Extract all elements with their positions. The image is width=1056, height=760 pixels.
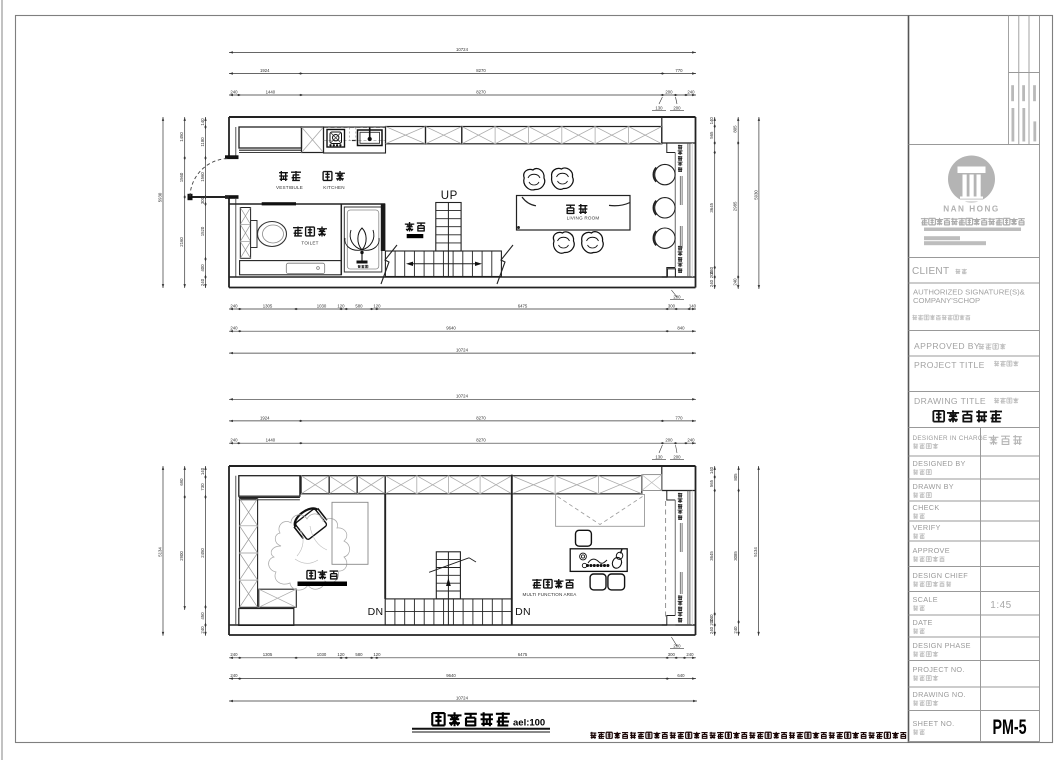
svg-text:APPROVE: APPROVE — [913, 546, 950, 555]
svg-text:770: 770 — [675, 68, 683, 73]
svg-text:1560: 1560 — [200, 172, 205, 182]
svg-text:3645: 3645 — [709, 202, 714, 212]
svg-text:10724: 10724 — [456, 695, 469, 700]
svg-text:240: 240 — [200, 278, 205, 286]
svg-text:VERIFY: VERIFY — [913, 523, 941, 532]
svg-text:2160: 2160 — [179, 237, 184, 247]
svg-text:LIVING ROOM: LIVING ROOM — [567, 216, 600, 221]
svg-text:DRAWING NO.: DRAWING NO. — [913, 690, 966, 699]
svg-text:140: 140 — [200, 467, 205, 475]
svg-text:200: 200 — [673, 455, 681, 460]
svg-text:2900: 2900 — [179, 551, 184, 561]
svg-text:8270: 8270 — [476, 89, 486, 94]
svg-text:NAN HONG: NAN HONG — [943, 205, 1000, 214]
svg-text:240: 240 — [200, 626, 205, 634]
svg-text:1180: 1180 — [200, 137, 205, 147]
svg-text:1450: 1450 — [179, 132, 184, 142]
svg-text:565: 565 — [709, 479, 714, 487]
svg-text:9640: 9640 — [446, 673, 456, 678]
svg-text:240: 240 — [230, 673, 238, 678]
svg-text:805: 805 — [733, 125, 738, 133]
svg-text:APPROVED BY: APPROVED BY — [914, 341, 980, 351]
svg-text:CLIENT: CLIENT — [912, 266, 949, 277]
svg-text:140: 140 — [709, 466, 714, 474]
svg-text:130: 130 — [655, 106, 663, 111]
svg-text:730: 730 — [200, 483, 205, 491]
svg-text:200: 200 — [673, 644, 681, 649]
svg-text:240: 240 — [686, 652, 694, 657]
svg-text:1520: 1520 — [200, 226, 205, 236]
svg-text:ael:100: ael:100 — [513, 718, 545, 729]
svg-text:770: 770 — [675, 415, 683, 420]
svg-text:MULTI FUNCTION AREA: MULTI FUNCTION AREA — [523, 592, 578, 597]
svg-text:200: 200 — [673, 295, 681, 300]
svg-text:240: 240 — [230, 89, 238, 94]
svg-text:140: 140 — [689, 303, 697, 308]
svg-text:200: 200 — [709, 270, 714, 278]
svg-text:300: 300 — [200, 196, 205, 204]
svg-text:CHECK: CHECK — [913, 503, 940, 512]
svg-text:COMPANY'SCHOP: COMPANY'SCHOP — [913, 296, 980, 305]
svg-text:120: 120 — [373, 303, 381, 308]
svg-text:1030: 1030 — [317, 652, 327, 657]
svg-text:130: 130 — [655, 455, 663, 460]
svg-text:400: 400 — [200, 264, 205, 272]
svg-text:8270: 8270 — [476, 68, 486, 73]
svg-text:PROJECT TITLE: PROJECT TITLE — [914, 360, 985, 370]
svg-text:805: 805 — [733, 473, 738, 481]
svg-text:DESIGN CHIEF: DESIGN CHIEF — [913, 571, 969, 580]
svg-text:10724: 10724 — [456, 394, 469, 399]
svg-text:200: 200 — [665, 438, 673, 443]
svg-text:200: 200 — [673, 106, 681, 111]
svg-text:1924: 1924 — [260, 68, 270, 73]
svg-text:8270: 8270 — [476, 438, 486, 443]
svg-text:240: 240 — [709, 626, 714, 634]
svg-text:UP: UP — [441, 190, 458, 202]
svg-text:640: 640 — [677, 673, 685, 678]
svg-text:9640: 9640 — [446, 326, 456, 331]
svg-text:1030: 1030 — [317, 303, 327, 308]
svg-text:450: 450 — [200, 612, 205, 620]
svg-text:200: 200 — [665, 89, 673, 94]
svg-text:580: 580 — [355, 303, 363, 308]
svg-text:DESIGN PHASE: DESIGN PHASE — [913, 641, 971, 650]
svg-text:3085: 3085 — [733, 551, 738, 561]
svg-text:200: 200 — [709, 618, 714, 626]
svg-text:DATE: DATE — [913, 618, 933, 627]
svg-text:VESTIBULE: VESTIBULE — [276, 185, 303, 190]
svg-text:1924: 1924 — [260, 415, 270, 420]
svg-text:240: 240 — [230, 438, 238, 443]
svg-text:120: 120 — [373, 652, 381, 657]
svg-text:240: 240 — [230, 652, 238, 657]
svg-text:240: 240 — [230, 326, 238, 331]
svg-text:140: 140 — [709, 117, 714, 125]
svg-text:120: 120 — [337, 652, 345, 657]
svg-text:DESIGNED BY: DESIGNED BY — [913, 459, 966, 468]
svg-text:565: 565 — [709, 131, 714, 139]
svg-text:2985: 2985 — [733, 201, 738, 211]
svg-text:1440: 1440 — [266, 438, 276, 443]
svg-text:5134: 5134 — [157, 547, 162, 557]
svg-text:120: 120 — [337, 303, 345, 308]
svg-text:10724: 10724 — [456, 348, 469, 353]
svg-text:240: 240 — [687, 438, 695, 443]
svg-text:300: 300 — [668, 652, 676, 657]
svg-text:DN: DN — [368, 606, 384, 618]
svg-text:1305: 1305 — [263, 303, 273, 308]
svg-text:140: 140 — [200, 118, 205, 126]
svg-text:240: 240 — [230, 303, 238, 308]
svg-text:690: 690 — [179, 478, 184, 486]
svg-text:240: 240 — [709, 279, 714, 287]
svg-text:DESIGNER IN CHARGE: DESIGNER IN CHARGE — [913, 435, 988, 442]
svg-text:6475: 6475 — [518, 652, 528, 657]
svg-text:5930: 5930 — [157, 192, 162, 202]
svg-text:DN: DN — [515, 606, 531, 618]
svg-text:5134: 5134 — [753, 547, 758, 557]
svg-text:DRAWN BY: DRAWN BY — [913, 482, 954, 491]
svg-text:5930: 5930 — [753, 190, 758, 200]
svg-text:SCALE: SCALE — [913, 595, 938, 604]
svg-text:2450: 2450 — [200, 548, 205, 558]
svg-text:3645: 3645 — [709, 551, 714, 561]
svg-text:PROJECT NO.: PROJECT NO. — [913, 665, 965, 674]
svg-text:1560: 1560 — [179, 172, 184, 182]
svg-text:6475: 6475 — [518, 303, 528, 308]
svg-text:10724: 10724 — [456, 47, 469, 52]
svg-text:1:45: 1:45 — [990, 600, 1011, 611]
svg-text:580: 580 — [355, 652, 363, 657]
svg-text:300: 300 — [668, 303, 676, 308]
svg-text:DRAWING TITLE: DRAWING TITLE — [914, 396, 986, 406]
svg-text:SHEET NO.: SHEET NO. — [913, 719, 955, 728]
svg-text:240: 240 — [687, 89, 695, 94]
svg-text:8270: 8270 — [476, 415, 486, 420]
svg-text:TOILET: TOILET — [301, 241, 318, 246]
svg-text:1305: 1305 — [263, 652, 273, 657]
svg-text:240: 240 — [733, 626, 738, 634]
svg-text:PM-5: PM-5 — [992, 715, 1026, 738]
svg-text:240: 240 — [733, 278, 738, 286]
svg-text:1440: 1440 — [266, 89, 276, 94]
svg-text:KITCHEN: KITCHEN — [323, 185, 345, 190]
svg-text:840: 840 — [677, 326, 685, 331]
